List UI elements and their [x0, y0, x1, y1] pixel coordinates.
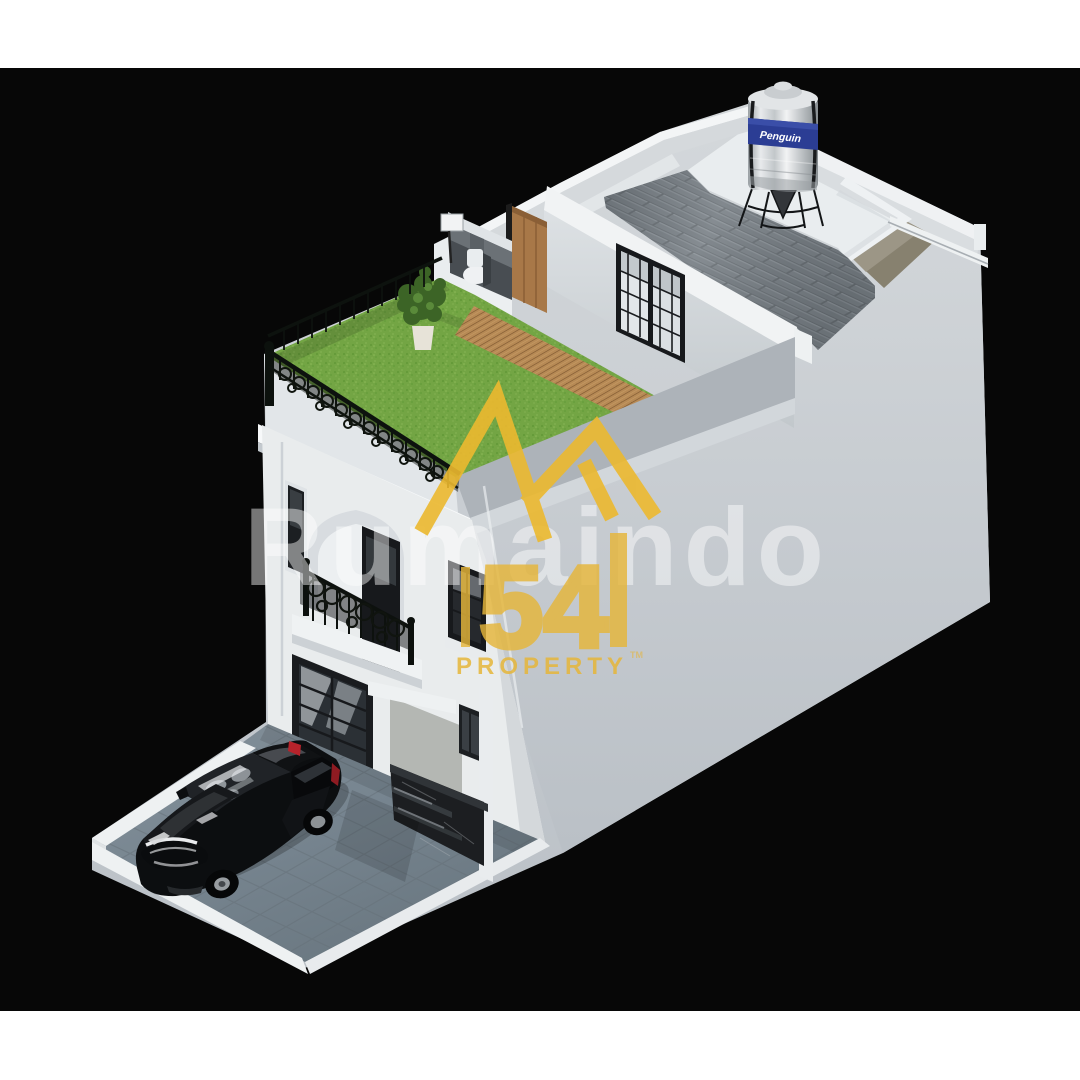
svg-text:PROPERTY: PROPERTY — [456, 653, 628, 680]
svg-text:TM: TM — [630, 650, 643, 660]
